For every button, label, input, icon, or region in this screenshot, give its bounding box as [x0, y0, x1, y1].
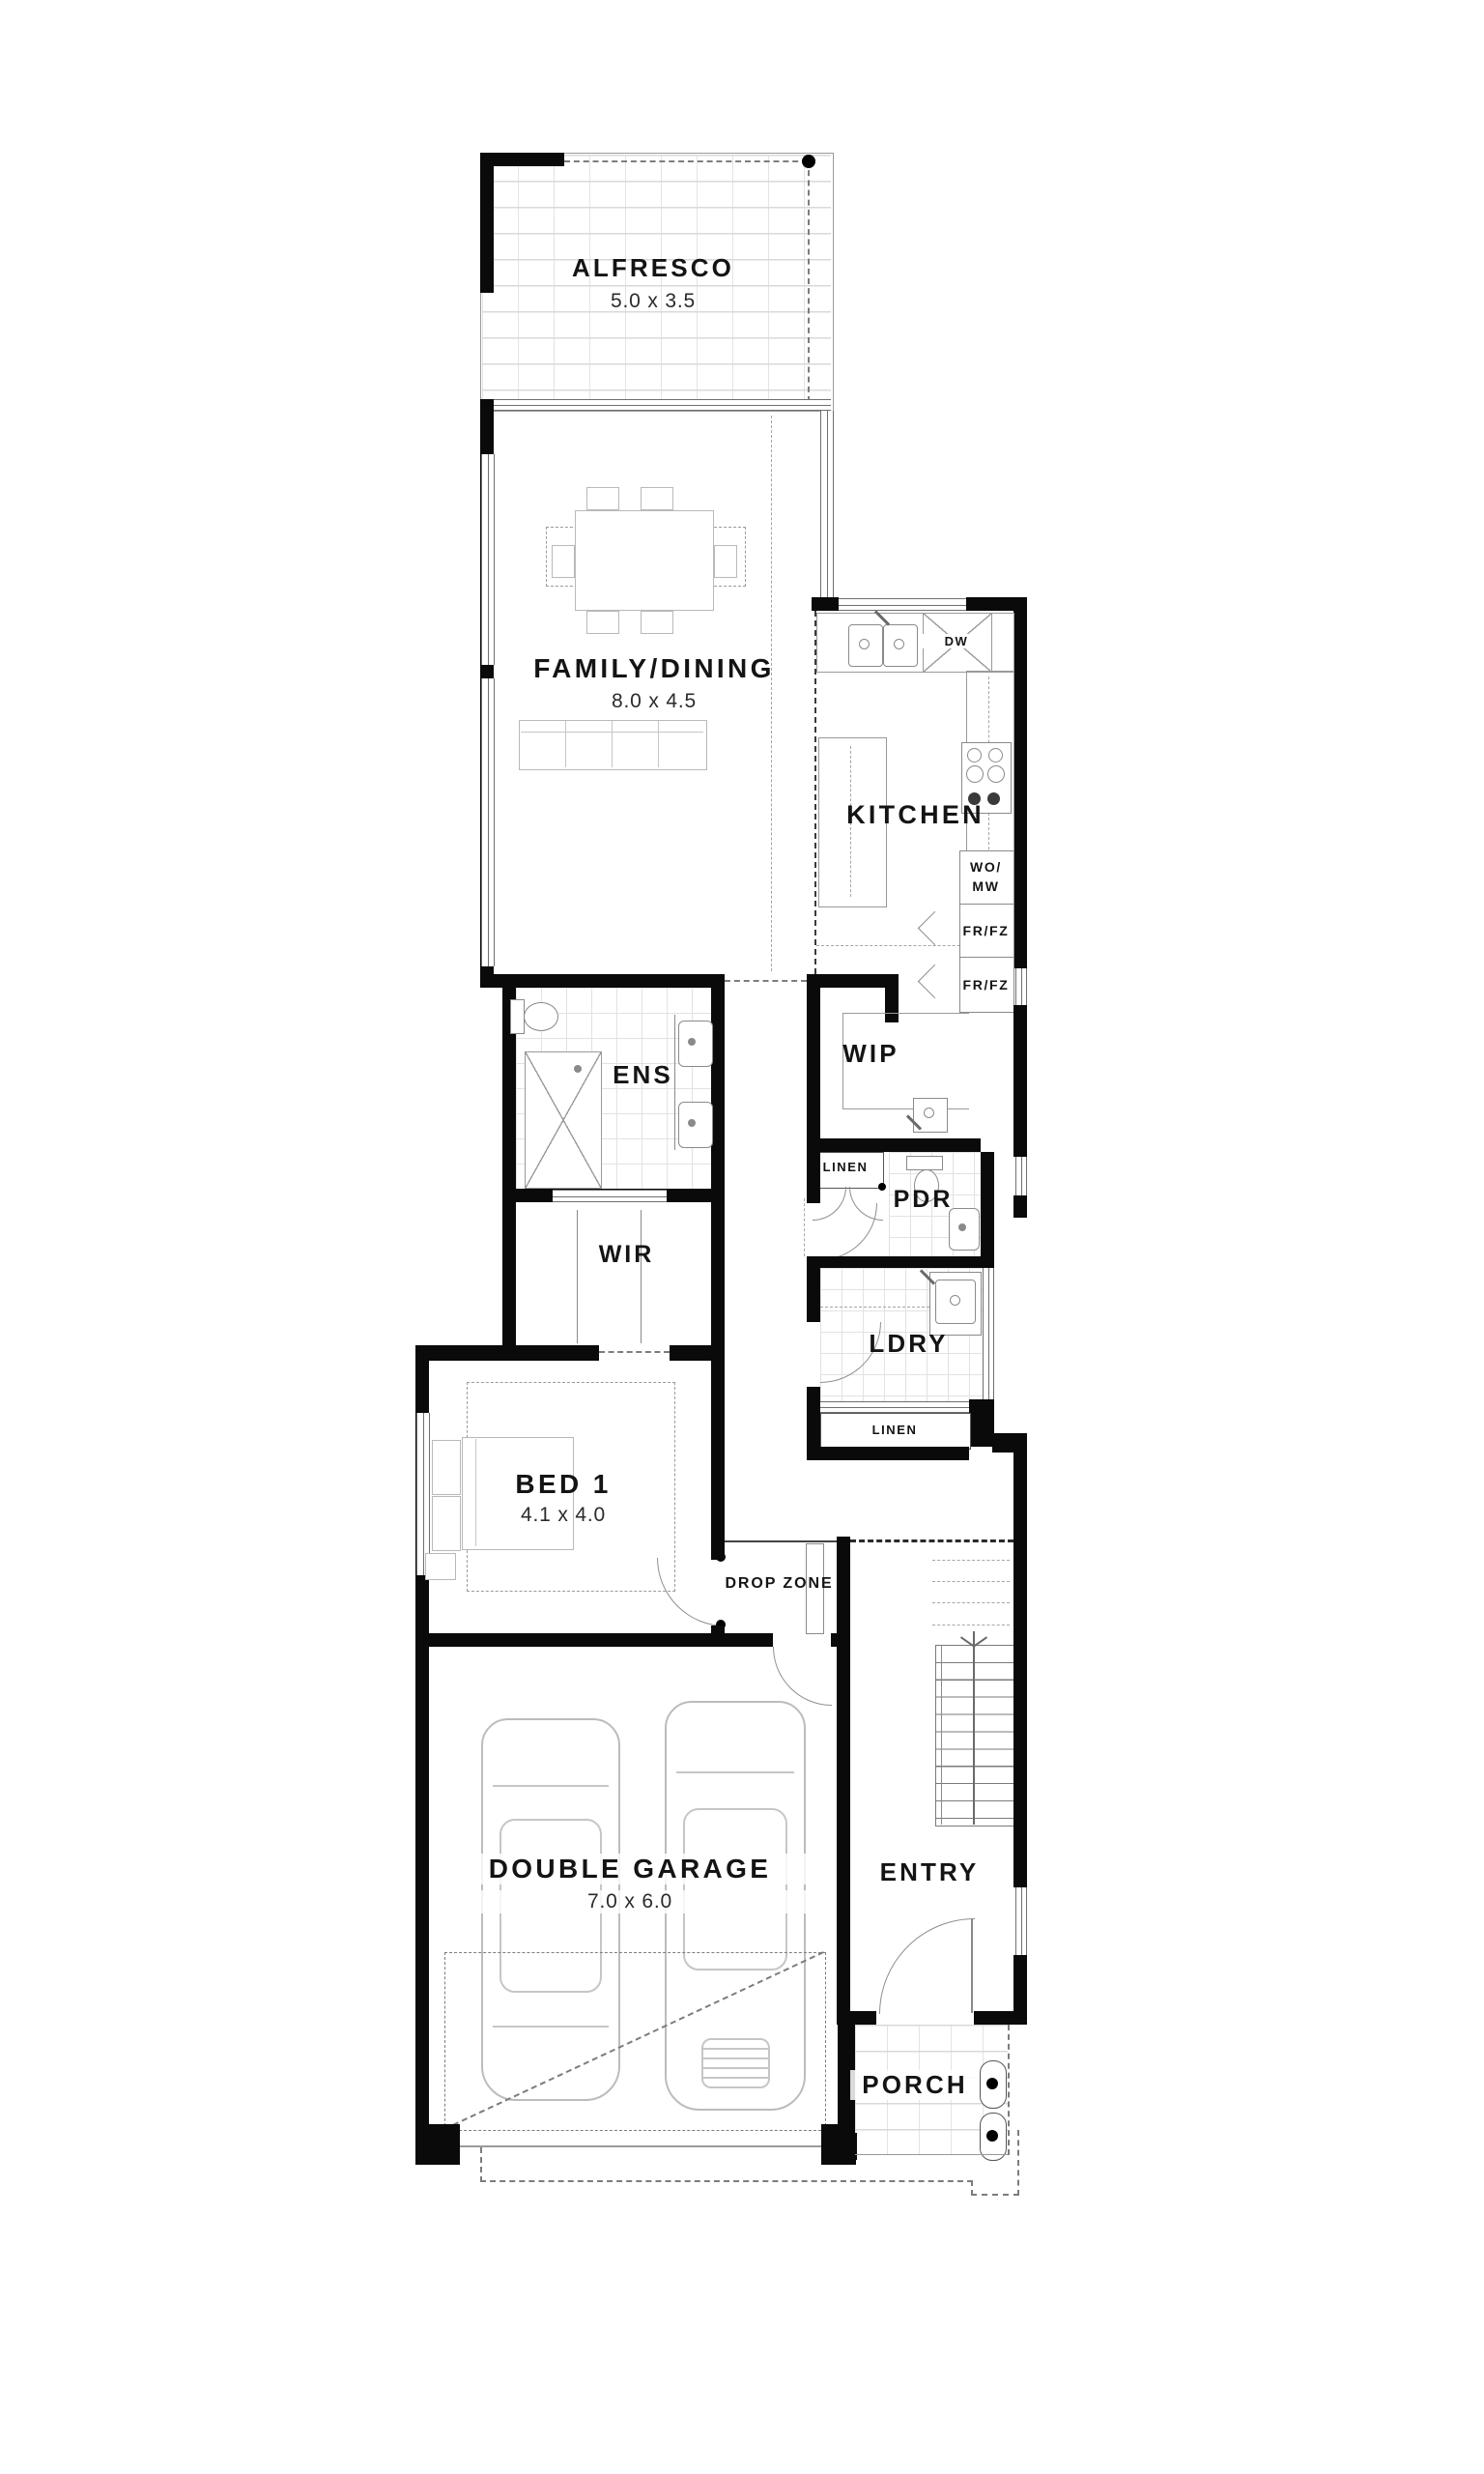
sink-drain: [950, 1295, 960, 1306]
fridge-freezer-label: FR/FZ: [959, 977, 1013, 992]
fridge-freezer-label: FR/FZ: [959, 923, 1013, 938]
porch-post-core: [986, 2078, 998, 2089]
wall-segment: [711, 974, 725, 1189]
alfresco-dashed-edge: [564, 160, 808, 162]
room-label-wir: WIR: [561, 1241, 692, 1269]
sink-drain: [894, 639, 904, 649]
sofa-divider: [612, 721, 613, 767]
porch-edge-line: [855, 2154, 1008, 2155]
bedside-table: [432, 1496, 461, 1551]
burner: [988, 748, 1003, 762]
driveway-dashed: [480, 2147, 482, 2182]
sink-drain: [924, 1108, 934, 1118]
dining-chair: [552, 545, 575, 578]
wall-segment: [670, 1345, 725, 1361]
wall-segment: [415, 1345, 599, 1361]
dining-chair: [641, 487, 673, 510]
garage-door-arc: [773, 1647, 832, 1706]
room-dims-bed1: 4.1 x 4.0: [481, 1504, 645, 1527]
room-label-drop-zone: DROP ZONE: [719, 1575, 840, 1593]
room-label-garage: DOUBLE GARAGE: [437, 1854, 823, 1884]
dining-chair: [641, 611, 673, 634]
burner: [987, 765, 1005, 783]
staircase: [935, 1645, 1014, 1827]
bed1-door-arc: [657, 1558, 726, 1626]
room-label-alfresco: ALFRESCO: [508, 253, 798, 283]
sliding-door: [553, 1190, 667, 1202]
robe-shelf-line: [577, 1210, 578, 1343]
stair-dashed-tread: [932, 1625, 1010, 1625]
driveway-dashed: [1017, 2130, 1019, 2196]
stair-stringer-line: [941, 1645, 942, 1825]
hall-opening-dashed: [725, 980, 807, 982]
garage-tilt-door: [444, 1952, 826, 2131]
pdr-door-arc: [820, 1203, 877, 1260]
basin-drain: [688, 1038, 696, 1046]
room-label-ldry: LDRY: [829, 1329, 988, 1359]
front-door-arc: [879, 1918, 975, 2014]
driveway-dashed: [971, 2194, 1019, 2196]
room-label-ens: ENS: [578, 1060, 708, 1090]
floor-plan: ALFRESCO 5.0 x 3.5 FAMILY/DINING 8.0 x 4…: [0, 0, 1484, 2474]
wall-segment: [974, 2011, 1027, 2025]
hall-dashed-line: [804, 1198, 805, 1256]
wall-segment: [807, 1152, 820, 1203]
stacker-door: [494, 399, 831, 411]
wall-segment: [711, 1537, 725, 1560]
window: [1015, 1887, 1027, 1955]
wall-segment: [1013, 1005, 1027, 1157]
wall-segment: [981, 1152, 994, 1256]
stair-dashed-tread: [932, 1581, 1010, 1582]
alfresco-post: [802, 155, 815, 168]
wall-segment: [812, 597, 839, 611]
sofa-divider: [565, 721, 566, 767]
window: [416, 1413, 430, 1575]
wall-segment: [480, 974, 725, 988]
wall-segment: [415, 1633, 429, 2126]
porch-pier: [826, 2133, 857, 2160]
wall-segment: [711, 1189, 725, 1558]
entry-dashed-boundary: [850, 1539, 1013, 1542]
bedside-table: [432, 1440, 461, 1495]
wall-segment: [1013, 1195, 1027, 1218]
window: [481, 678, 495, 966]
burner: [966, 765, 984, 783]
stair-dashed-tread: [932, 1602, 1010, 1603]
wall-segment: [807, 974, 899, 988]
dining-chair: [714, 545, 737, 578]
bedroom-drawer: [425, 1553, 456, 1580]
toilet-bowl: [524, 1002, 558, 1031]
porch-post-core: [986, 2130, 998, 2142]
wall-segment: [1013, 1433, 1027, 1887]
fridge-door-swing: [918, 964, 952, 998]
driveway-dashed: [480, 2180, 973, 2182]
bench-dashed-line: [820, 1307, 929, 1308]
sliding-door: [820, 1401, 971, 1413]
garage-slab-edge: [429, 2145, 835, 2147]
wall-segment: [1013, 597, 1027, 968]
alfresco-dashed-edge: [808, 160, 810, 402]
window: [839, 598, 966, 611]
room-dims-alfresco: 5.0 x 3.5: [508, 290, 798, 313]
wall-segment: [838, 2011, 876, 2025]
burner: [967, 748, 982, 762]
window: [820, 411, 834, 599]
fridge-door-swing: [918, 911, 952, 945]
toilet-cistern: [906, 1156, 943, 1170]
wall-segment: [415, 1633, 773, 1647]
window: [481, 454, 495, 665]
dining-chair: [586, 611, 619, 634]
stair-center-line: [973, 1631, 975, 1825]
toilet-cistern: [510, 999, 525, 1034]
dishwasher-label: DW: [923, 634, 990, 648]
wall-segment: [807, 1256, 994, 1268]
wall-segment: [807, 1138, 981, 1152]
robe-shelf-line: [641, 1210, 642, 1343]
wall-segment: [480, 153, 494, 293]
linen-label: LINEN: [820, 1423, 969, 1437]
basin-drain: [688, 1119, 696, 1127]
wall-segment: [837, 1647, 850, 2025]
sofa-divider: [658, 721, 659, 767]
window: [1015, 968, 1027, 1005]
sink-drain: [859, 639, 870, 649]
front-door-leaf: [971, 1918, 973, 2013]
room-label-pdr: PDR: [882, 1186, 964, 1214]
wall-segment: [807, 1447, 969, 1460]
room-dims-family-dining: 8.0 x 4.5: [461, 690, 847, 713]
bed-headboard-line: [475, 1439, 476, 1546]
dining-table: [575, 510, 714, 611]
car-windshield: [676, 1771, 794, 1773]
car-windshield: [493, 1785, 609, 1787]
wall-segment: [807, 1268, 820, 1322]
basin-drain: [958, 1223, 966, 1231]
room-dims-garage: 7.0 x 6.0: [437, 1890, 823, 1913]
vanity-basin: [678, 1102, 713, 1148]
room-label-family-dining: FAMILY/DINING: [461, 653, 847, 684]
room-label-entry: ENTRY: [849, 1857, 1010, 1887]
wall-line: [725, 1540, 837, 1542]
room-label-wip: WIP: [806, 1039, 936, 1069]
wall-segment: [969, 1399, 994, 1447]
sofa: [519, 720, 707, 770]
porch-dashed-edge: [1008, 2025, 1010, 2155]
bed1-opening-dashed: [599, 1351, 670, 1353]
wall-oven-microwave-label: WO/ MW: [959, 858, 1013, 896]
garage-pier: [415, 2124, 460, 2165]
room-label-kitchen: KITCHEN: [816, 800, 1014, 830]
room-label-porch: PORCH: [850, 2070, 980, 2100]
room-label-bed1: BED 1: [481, 1469, 645, 1500]
window: [1015, 1157, 1027, 1195]
dining-chair: [586, 487, 619, 510]
wall-segment: [831, 1633, 850, 1647]
stair-dashed-tread: [932, 1560, 1010, 1561]
